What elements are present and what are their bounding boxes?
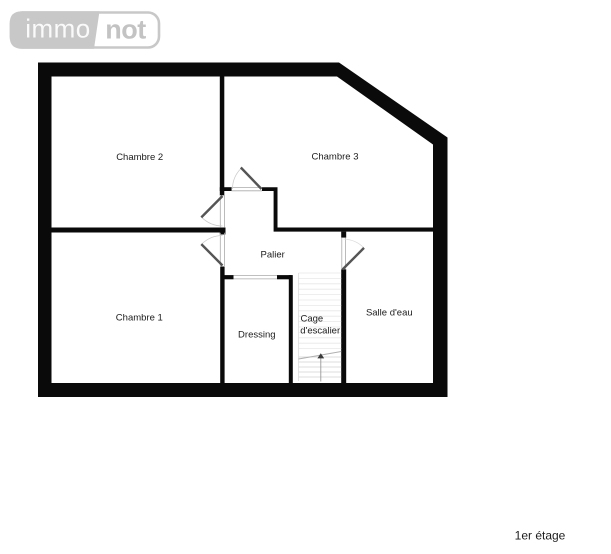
svg-text:Dressing: Dressing bbox=[238, 329, 276, 340]
svg-text:Cage: Cage bbox=[301, 313, 324, 324]
svg-text:1er étage: 1er étage bbox=[515, 529, 566, 543]
svg-text:Chambre 2: Chambre 2 bbox=[116, 152, 163, 163]
svg-text:Chambre 3: Chambre 3 bbox=[312, 152, 359, 163]
svg-text:Salle d'eau: Salle d'eau bbox=[366, 307, 413, 318]
svg-text:Palier: Palier bbox=[261, 250, 285, 261]
svg-text:not: not bbox=[105, 15, 146, 45]
svg-text:Chambre 1: Chambre 1 bbox=[116, 313, 163, 324]
svg-text:immo: immo bbox=[25, 14, 91, 44]
svg-text:d'escalier: d'escalier bbox=[300, 325, 340, 336]
